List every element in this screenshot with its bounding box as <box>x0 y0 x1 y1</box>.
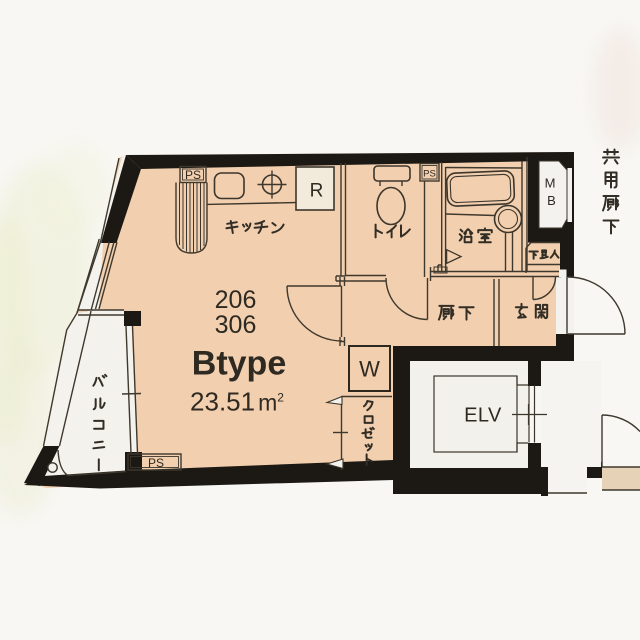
svg-text:306: 306 <box>215 311 257 339</box>
svg-text:ELV: ELV <box>464 405 502 427</box>
svg-text:PS: PS <box>148 456 164 470</box>
svg-text:23.51m2: 23.51m2 <box>190 387 284 417</box>
svg-text:M: M <box>545 176 556 191</box>
svg-text:B: B <box>547 193 556 208</box>
svg-text:PS: PS <box>423 169 436 180</box>
svg-text:W: W <box>359 357 380 382</box>
svg-text:R: R <box>310 181 324 202</box>
svg-text:206: 206 <box>215 286 257 314</box>
svg-text:Btype: Btype <box>192 345 286 383</box>
svg-text:PS: PS <box>185 168 201 182</box>
